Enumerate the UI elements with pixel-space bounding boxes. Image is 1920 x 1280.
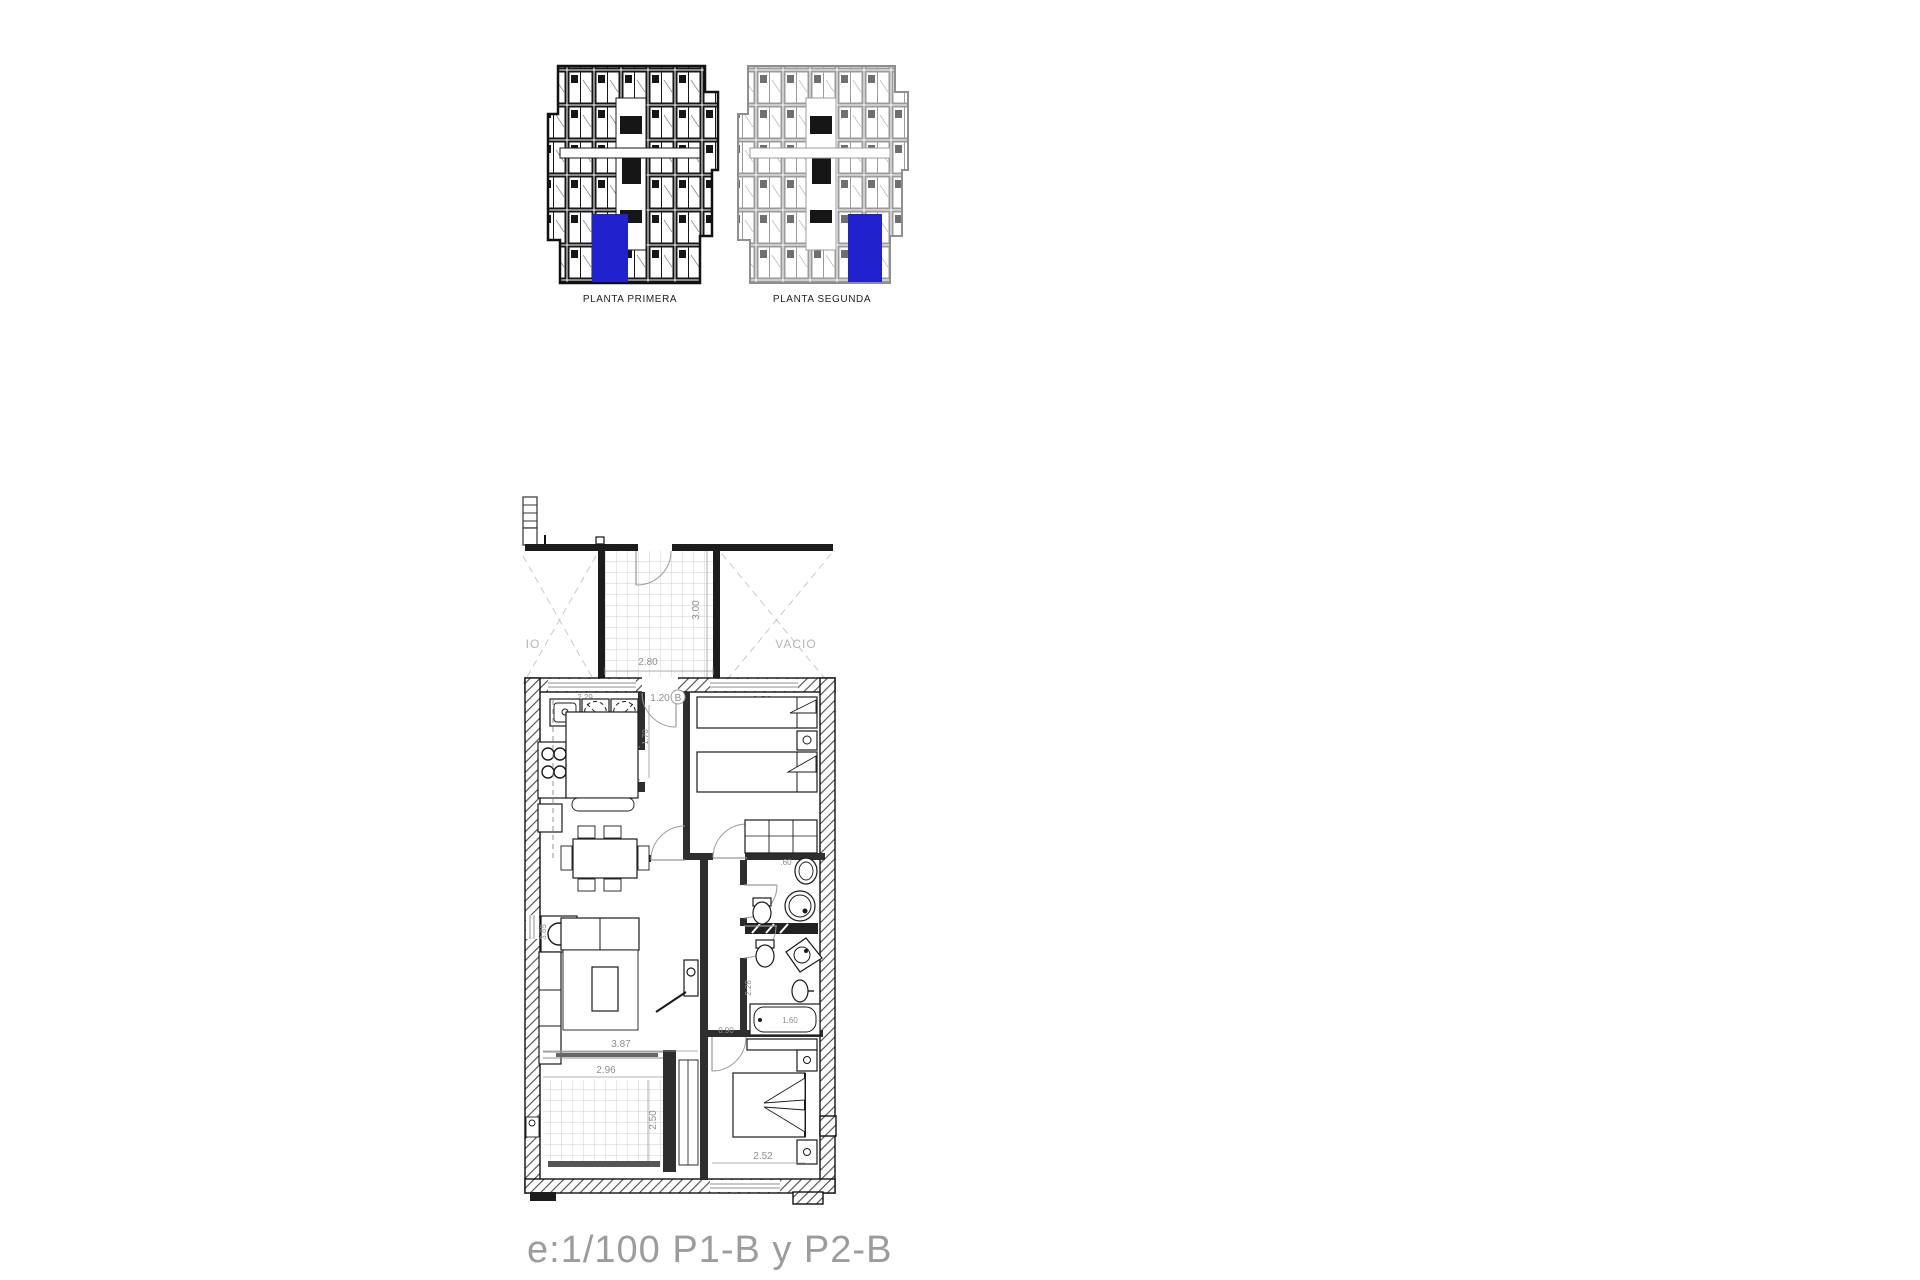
bedroom2-window	[710, 1180, 780, 1192]
terrace-top: 2.80 3.00	[598, 551, 720, 690]
wardrobe-1	[745, 820, 817, 853]
dining-table	[561, 826, 649, 891]
living-dining: 3.87 3.85	[539, 826, 698, 1064]
bedroom1-door-arc	[713, 824, 747, 858]
bath1-toilet	[753, 898, 771, 924]
vacio-right-text: VACIO	[775, 637, 816, 651]
overview-plan-segunda: PLANTA SEGUNDA	[738, 66, 908, 305]
nightstand-1	[797, 731, 817, 750]
bath1-shower-basin	[785, 891, 815, 921]
bath2-bidet	[792, 980, 814, 1002]
bath2-toilet	[756, 940, 774, 967]
dim-living-width: 3.87	[611, 1039, 631, 1050]
floor-plan-drawing: PLANTA PRIMERA PLANTA SEGUNDA	[0, 0, 1920, 1280]
entrance-door-letter: B	[675, 693, 682, 704]
living-door-arc	[651, 826, 685, 860]
bathroom-1: .60	[753, 858, 817, 924]
terrace-bottom-tiles	[543, 1080, 663, 1165]
dim-terrace-bottom-depth: 2.50	[648, 1110, 659, 1130]
bedroom-2: 2.52	[712, 1039, 817, 1164]
ac-unit	[526, 1117, 539, 1137]
dim-terrace-top-depth: 3.00	[691, 600, 702, 620]
overview-plan-primera: PLANTA PRIMERA	[548, 66, 718, 305]
bath-divider-shelf	[745, 923, 818, 934]
wardrobe-2	[747, 1039, 817, 1050]
drawing-sheet: PLANTA PRIMERA PLANTA SEGUNDA	[0, 0, 1920, 1280]
double-bed	[733, 1073, 805, 1137]
dim-terrace-bottom-width: 2.96	[596, 1065, 616, 1076]
upper-boundary-wall	[525, 537, 833, 551]
kitchen-counter	[572, 798, 634, 811]
storage-closet	[679, 1060, 698, 1165]
dim-bedroom2-width: 2.52	[753, 1151, 773, 1162]
tv-unit	[656, 960, 698, 1012]
bath2-corner-sink	[786, 938, 822, 972]
dim-bath2-depth: 2.28	[744, 980, 753, 996]
bedroom2-door-arc	[712, 1037, 746, 1071]
dim-bath1-width: .60	[780, 858, 792, 867]
vacio-left-text: IO	[526, 637, 541, 651]
dim-living-depth: 3.85	[539, 924, 548, 940]
kitchen-island	[566, 712, 638, 798]
stair-fragment	[523, 497, 545, 545]
primera-highlighted-unit	[592, 214, 628, 282]
kitchen-cabinet	[538, 804, 562, 832]
nightstand-2	[797, 1050, 817, 1071]
nightstand-3	[797, 1140, 817, 1164]
dim-hall-depth: 1.70	[641, 729, 650, 745]
coffee-table	[592, 967, 618, 1011]
segunda-highlighted-unit	[848, 214, 882, 282]
bathroom-2: 2.28 1.60 0.90	[718, 938, 822, 1035]
bedroom-1: 2.52	[697, 695, 817, 853]
entrance-labels: 1.20 B 1.70	[641, 690, 685, 778]
sliding-door-glass	[556, 1053, 658, 1057]
living-window	[526, 915, 539, 939]
primera-label: PLANTA PRIMERA	[583, 294, 677, 305]
kitchen-window	[548, 679, 636, 691]
scale-label: e:1/100 P1-B y P2-B	[527, 1229, 892, 1271]
segunda-label: PLANTA SEGUNDA	[773, 294, 871, 305]
dim-terrace-top-width: 2.80	[638, 657, 658, 668]
bathtub: 1.60	[750, 1004, 820, 1035]
main-floor-plan: 2.80 3.00 IO VACIO	[523, 497, 836, 1204]
bedroom1-window	[710, 679, 798, 691]
dim-corridor-width: 0.90	[718, 1026, 734, 1035]
terrace-railing	[548, 1161, 660, 1167]
dim-entrance-width: 1.20	[650, 693, 670, 704]
dim-tub-length: 1.60	[782, 1016, 798, 1025]
